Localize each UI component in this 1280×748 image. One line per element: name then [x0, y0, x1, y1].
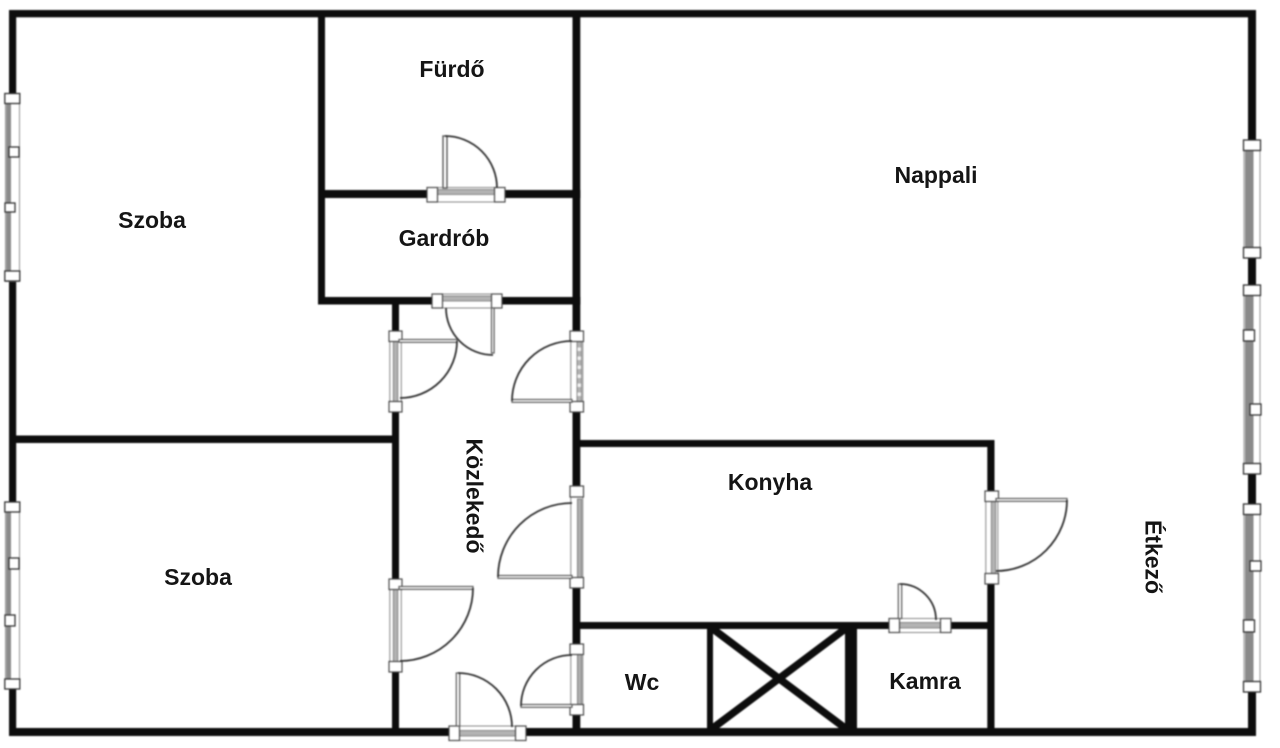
svg-text:Étkező: Étkező — [1141, 520, 1168, 594]
svg-text:Gardrób: Gardrób — [399, 225, 490, 251]
svg-text:Közlekedő: Közlekedő — [462, 438, 488, 553]
svg-text:Szoba: Szoba — [118, 207, 186, 233]
svg-text:Szoba: Szoba — [164, 564, 232, 590]
svg-text:Wc: Wc — [625, 669, 660, 695]
svg-text:Kamra: Kamra — [889, 668, 961, 694]
svg-text:Konyha: Konyha — [728, 469, 813, 495]
svg-text:Nappali: Nappali — [894, 162, 977, 188]
svg-text:Fürdő: Fürdő — [419, 56, 484, 82]
